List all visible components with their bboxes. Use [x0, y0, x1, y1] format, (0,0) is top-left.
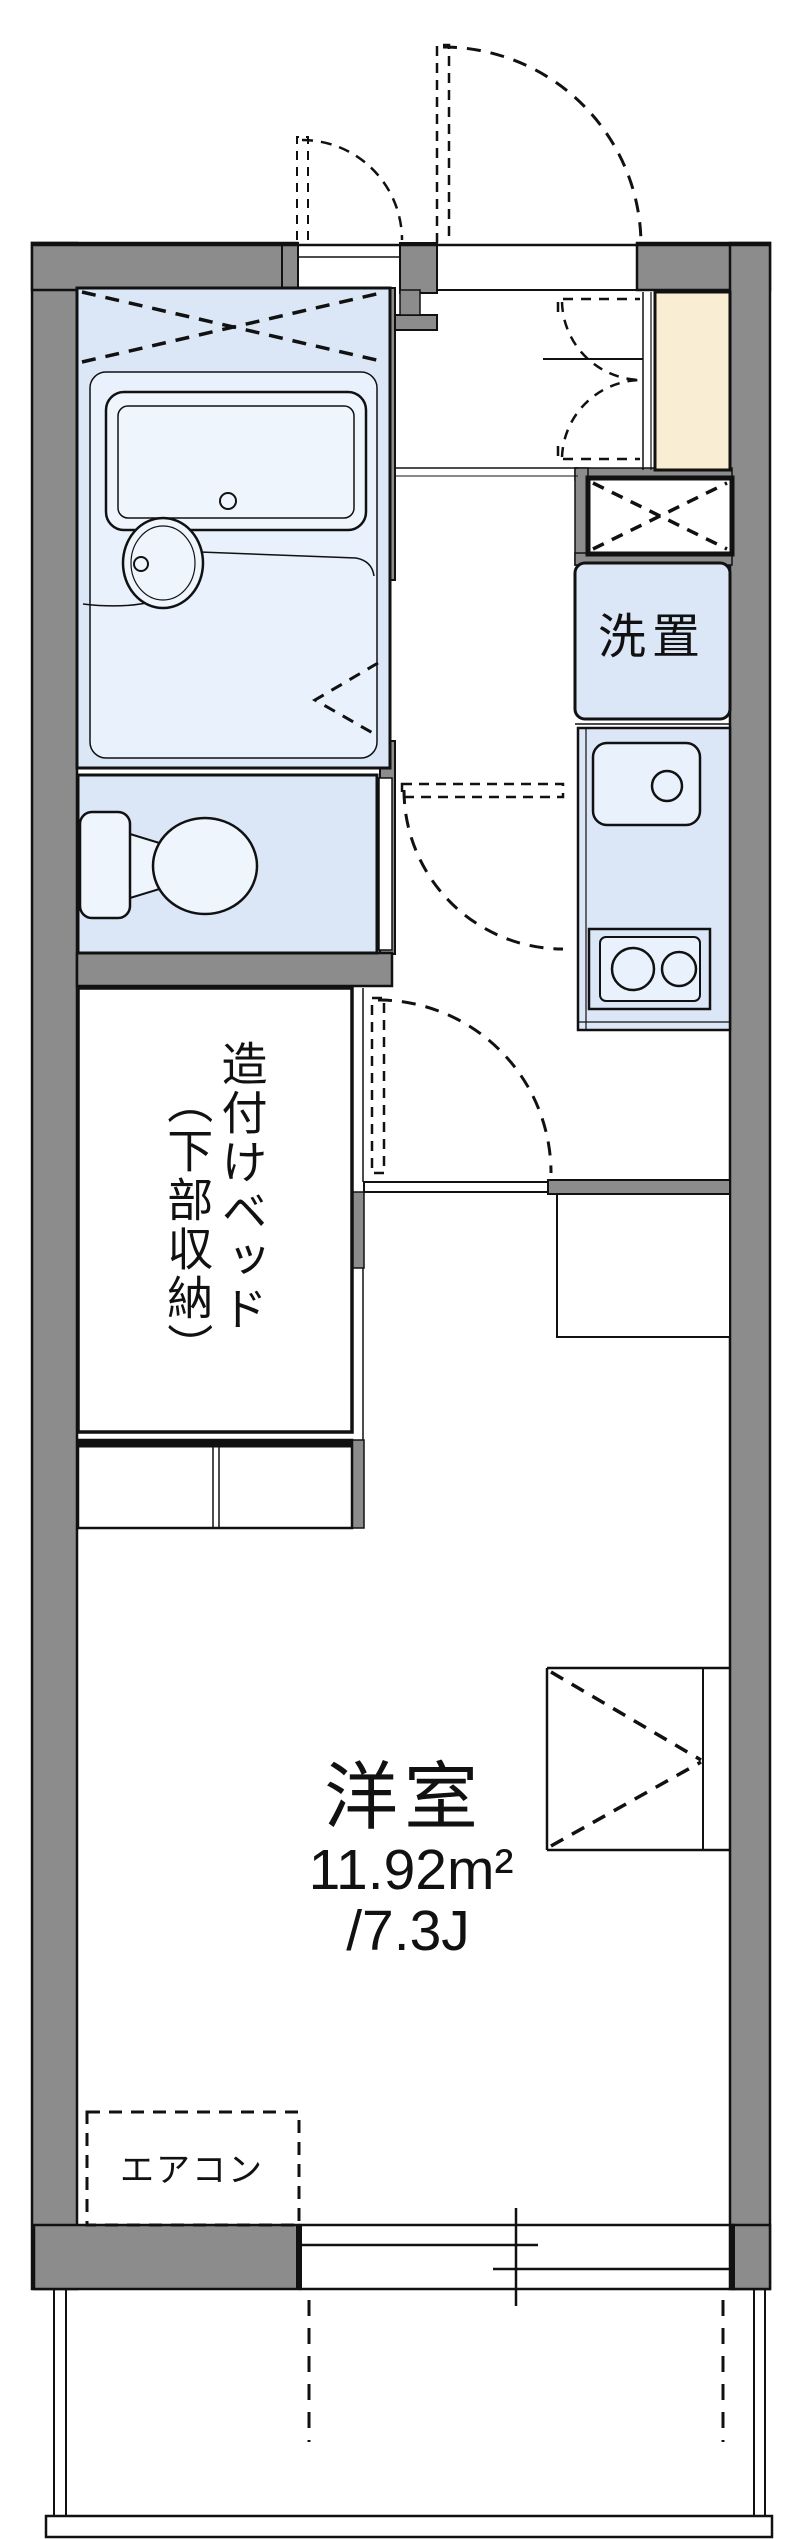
- storage-xbox: [588, 478, 732, 554]
- balcony: [46, 2289, 772, 2537]
- built-in-bed-label-line2: （下部収納）: [160, 1040, 214, 1380]
- room-door-swing: [372, 998, 551, 1173]
- aircon-label: エアコン: [120, 2143, 264, 2192]
- under-bed-shelf: [78, 1440, 352, 1528]
- kitchen-sink: [593, 743, 700, 825]
- floor-plan: 洗置 造付けベッド （下部収納） 洋室 11.92m² /7.3J エアコン: [0, 0, 800, 2539]
- washroom-door-swing: [402, 784, 563, 949]
- room-area-jo-label: /7.3J: [346, 1898, 470, 1964]
- room-doorway-sill: [364, 1182, 548, 1192]
- bathtub: [106, 392, 366, 530]
- meterbox-door-swing: [297, 137, 402, 240]
- toilet-room: [78, 775, 392, 953]
- refrigerator-nook: [557, 1194, 730, 1337]
- closet-door-chevron: [551, 1672, 701, 1846]
- sliding-window: [296, 2208, 735, 2306]
- shoe-cabinet: [558, 292, 730, 470]
- two-burner-stove: [589, 929, 710, 1009]
- room-name-label: 洋室: [324, 1738, 484, 1845]
- entrance-door-swing: [437, 45, 641, 245]
- balcony-partition-lines: [309, 2300, 723, 2442]
- built-in-bed-label: 造付けベッド （下部収納）: [160, 1040, 269, 1380]
- closet: [547, 1668, 729, 1850]
- bathroom: [77, 288, 390, 768]
- laundry-space-label: 洗置: [598, 597, 706, 667]
- built-in-bed-label-line1: 造付けベッド: [214, 1040, 268, 1380]
- kitchen-counter: [578, 728, 730, 1030]
- room-area-m2-label: 11.92m²: [309, 1837, 514, 1903]
- shoe-cabinet-door-swing: [558, 299, 641, 459]
